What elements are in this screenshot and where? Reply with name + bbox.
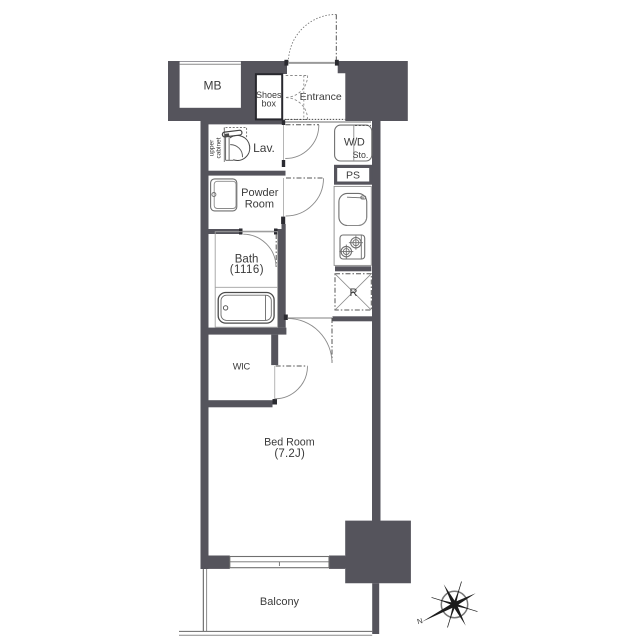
svg-text:Room: Room	[245, 199, 274, 211]
svg-text:MB: MB	[204, 79, 222, 93]
svg-text:Sto.: Sto.	[353, 150, 369, 160]
svg-text:cabinet: cabinet	[216, 137, 223, 158]
svg-text:PS: PS	[346, 170, 360, 182]
svg-text:Bed Room: Bed Room	[264, 436, 315, 448]
svg-text:box: box	[262, 98, 277, 108]
svg-text:Powder: Powder	[241, 187, 279, 199]
svg-text:R: R	[350, 287, 358, 299]
svg-text:Entrance: Entrance	[300, 91, 342, 103]
svg-text:Balcony: Balcony	[260, 596, 300, 608]
svg-text:upper: upper	[209, 139, 216, 156]
svg-text:(7.2J): (7.2J)	[274, 448, 305, 460]
svg-text:(1116): (1116)	[230, 264, 264, 276]
svg-text:WIC: WIC	[233, 362, 251, 372]
svg-text:W/D: W/D	[344, 137, 365, 149]
svg-text:Lav.: Lav.	[253, 141, 275, 155]
